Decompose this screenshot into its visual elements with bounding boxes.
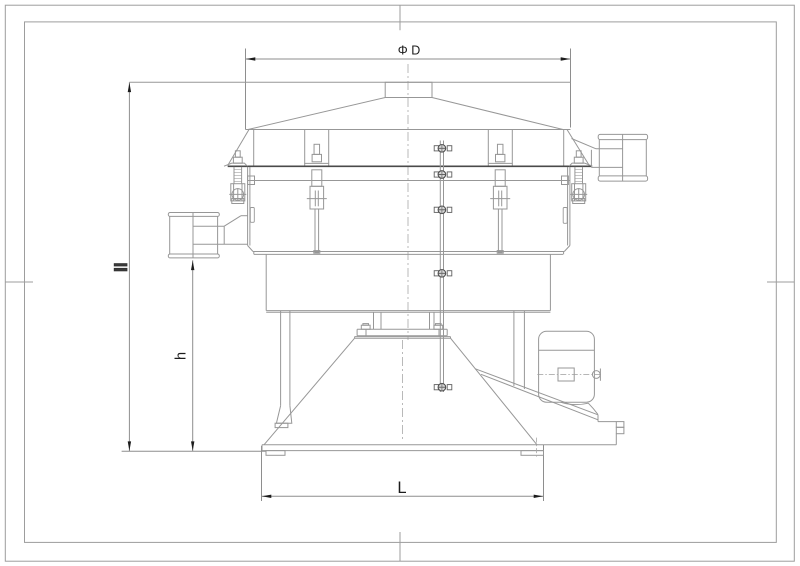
- svg-text:L: L: [397, 479, 406, 497]
- svg-text:Φ D: Φ D: [398, 44, 420, 58]
- svg-text:h: h: [174, 352, 190, 360]
